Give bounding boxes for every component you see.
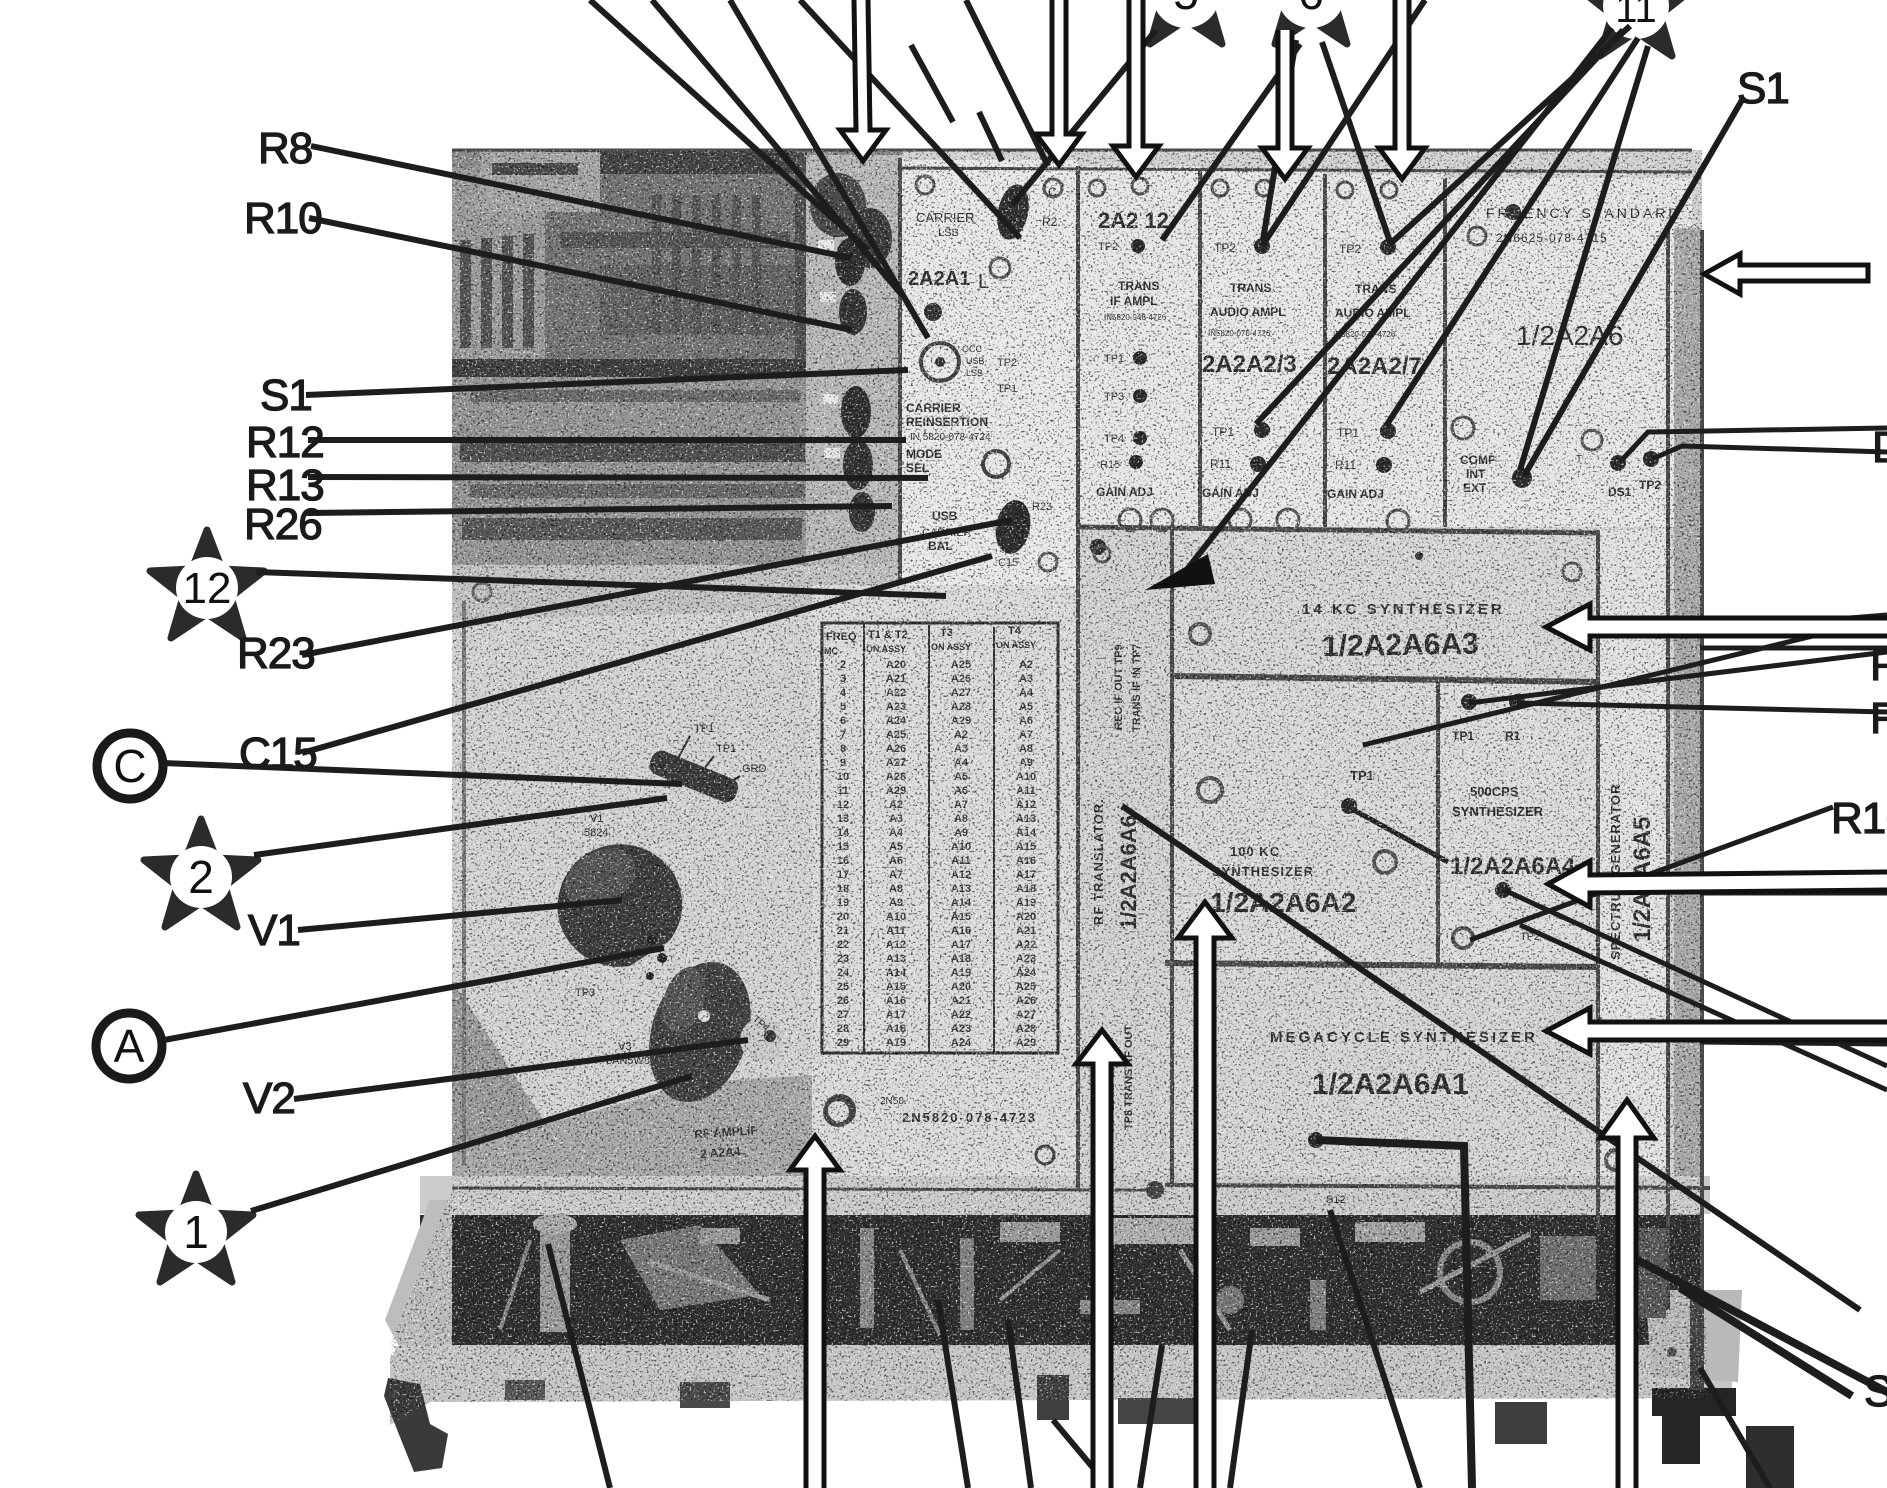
- svg-text:2: 2: [188, 851, 214, 903]
- svg-text:A: A: [114, 1020, 145, 1072]
- svg-text:R10: R10: [244, 194, 322, 243]
- svg-text:1: 1: [183, 1206, 209, 1258]
- svg-text:R: R: [1870, 694, 1887, 743]
- svg-text:5: 5: [1173, 0, 1199, 19]
- svg-text:R26: R26: [244, 500, 322, 549]
- svg-text:11: 11: [1615, 0, 1657, 31]
- svg-text:C: C: [113, 740, 146, 792]
- svg-text:6: 6: [1298, 0, 1324, 19]
- svg-text:V1: V1: [248, 906, 300, 955]
- svg-text:S: S: [1864, 1367, 1887, 1416]
- svg-text:R8: R8: [258, 124, 312, 173]
- svg-text:S1: S1: [1737, 64, 1789, 113]
- svg-text:S1: S1: [260, 371, 312, 420]
- svg-text:R12: R12: [246, 418, 324, 467]
- svg-text:12: 12: [183, 564, 232, 613]
- svg-text:C15: C15: [239, 729, 317, 778]
- svg-text:R16: R16: [1831, 794, 1887, 843]
- svg-text:D: D: [1872, 423, 1887, 472]
- svg-text:R: R: [1870, 641, 1887, 690]
- svg-text:V2: V2: [243, 1074, 295, 1123]
- svg-text:R23: R23: [237, 629, 315, 678]
